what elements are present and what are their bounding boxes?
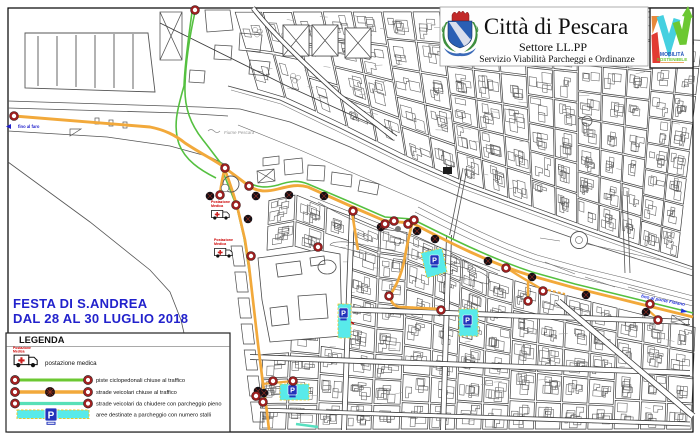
svg-text:postazione medica: postazione medica: [45, 360, 97, 367]
svg-text:P: P: [465, 316, 470, 325]
svg-text:Medica: Medica: [13, 350, 25, 354]
svg-text:strade veicolari da chiudere c: strade veicolari da chiudere con parcheg…: [96, 402, 222, 408]
svg-text:strade veicolari chiuse al tra: strade veicolari chiuse al traffico: [96, 390, 177, 396]
svg-text:P: P: [432, 256, 437, 265]
svg-text:fino al faro: fino al faro: [18, 124, 40, 129]
svg-text:FESTA DI S.ANDREA: FESTA DI S.ANDREA: [13, 296, 148, 311]
svg-text:Fiume Pescara: Fiume Pescara: [224, 130, 255, 135]
svg-text:DAL 28 AL 30 LUGLIO 2018: DAL 28 AL 30 LUGLIO 2018: [13, 311, 188, 326]
svg-text:piste ciclopedonali chiuse al: piste ciclopedonali chiuse al traffico: [96, 378, 185, 384]
svg-text:Settore LL.PP: Settore LL.PP: [519, 40, 587, 54]
svg-text:Medica: Medica: [214, 242, 227, 246]
svg-text:aree destinate a parcheggio co: aree destinate a parcheggio con numero s…: [96, 413, 211, 419]
svg-text:P: P: [290, 386, 295, 395]
svg-text:P: P: [341, 309, 346, 318]
svg-text:Città di Pescara: Città di Pescara: [484, 14, 628, 39]
svg-text:SOSTENIBILE: SOSTENIBILE: [657, 57, 688, 62]
svg-text:Servizio Viabilità Parcheggi: Servizio Viabilità Parcheggi e Ordinanze: [479, 55, 634, 65]
svg-text:Medica: Medica: [211, 204, 224, 208]
svg-text:LEGENDA: LEGENDA: [19, 335, 65, 345]
svg-text:P: P: [48, 410, 55, 421]
